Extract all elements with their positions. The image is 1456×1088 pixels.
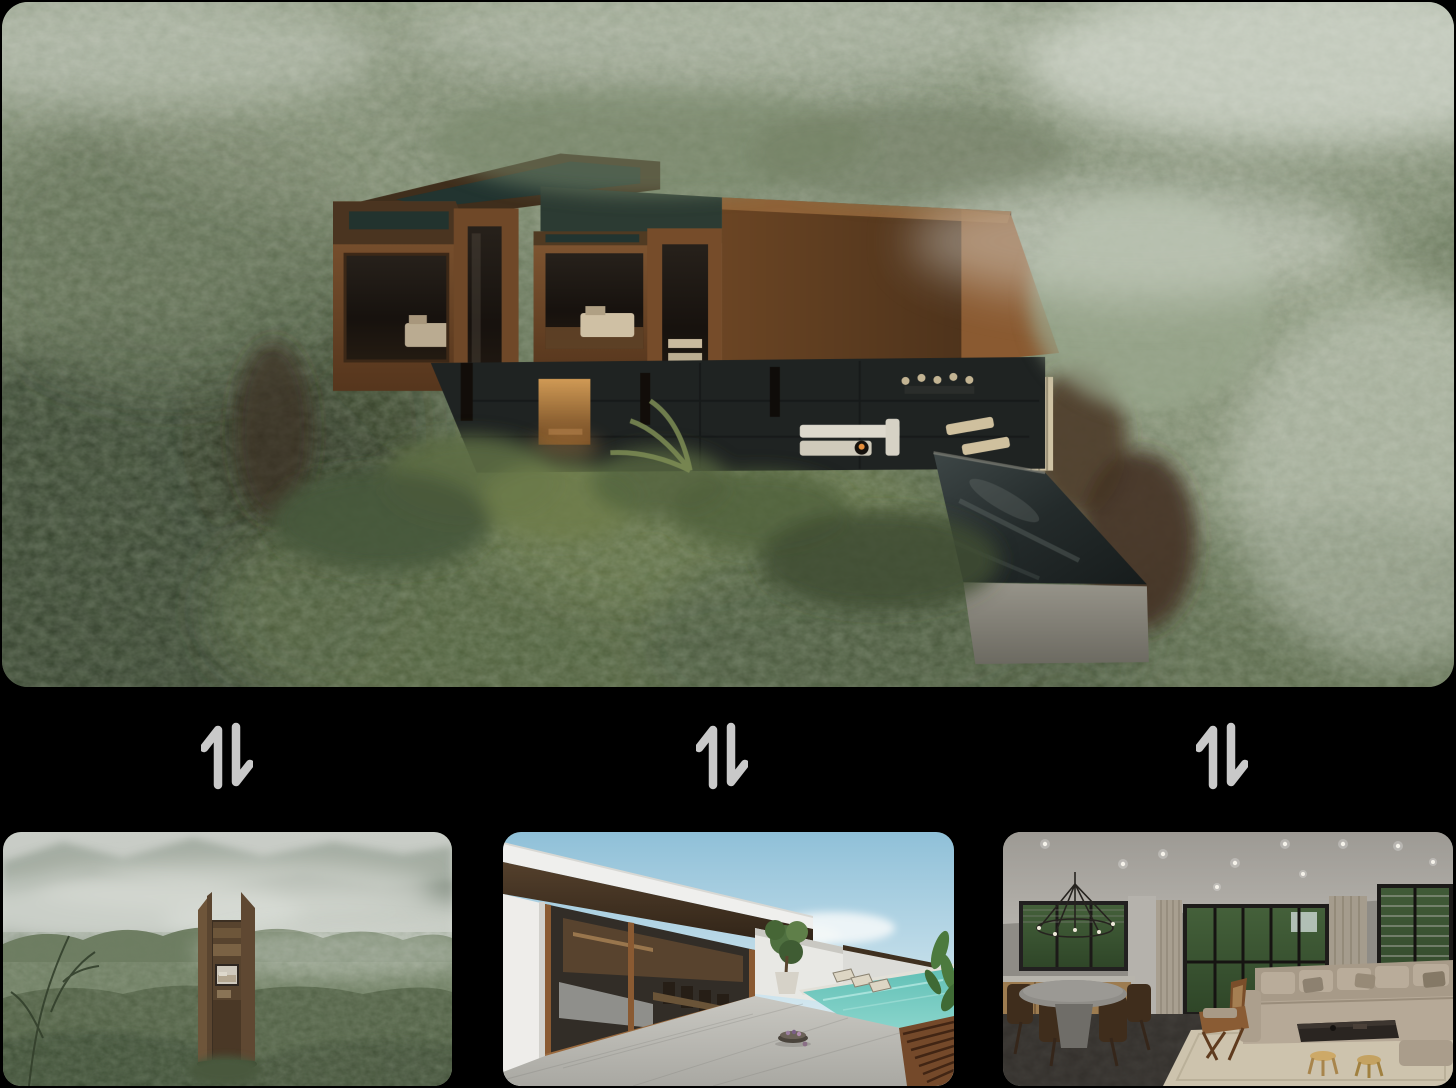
collage-canvas [0,0,1456,1088]
thumbnail-tower-image[interactable] [3,832,452,1086]
hero-image [2,2,1454,687]
thumbnail-interior-image[interactable] [1003,832,1453,1086]
slatted-bench [899,1016,954,1086]
swap-vertical-icon[interactable] [696,722,748,790]
swap-vertical-icon[interactable] [1196,722,1248,790]
thumbnail-pool-villa-image[interactable] [503,832,954,1086]
swap-vertical-icon[interactable] [201,722,253,790]
wooden-tower [189,892,261,1084]
